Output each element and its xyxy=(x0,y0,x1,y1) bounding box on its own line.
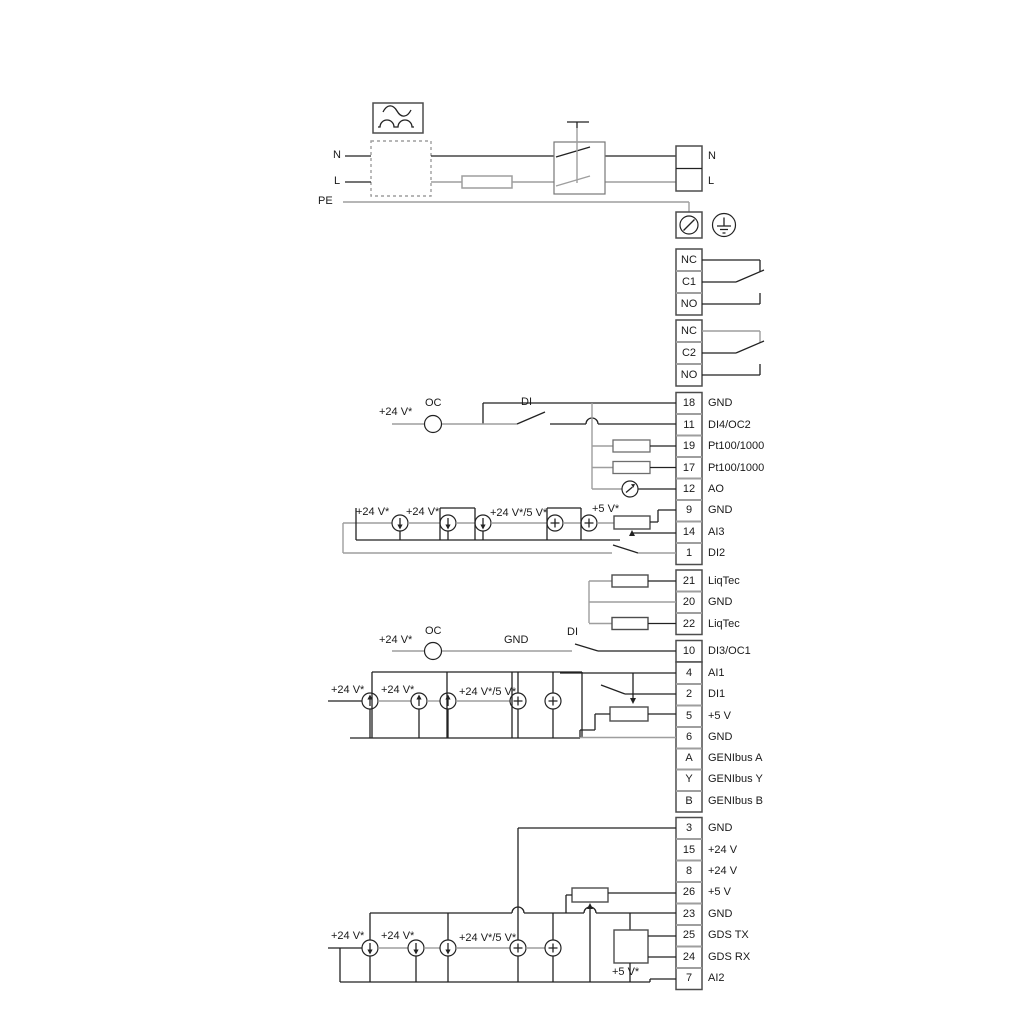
terminal-25-label: GDS TX xyxy=(708,929,749,942)
terminal-1-label: DI2 xyxy=(708,547,725,560)
terminal-12: 12 xyxy=(676,482,702,496)
terminal-14: 14 xyxy=(676,525,702,539)
terminal-25: 25 xyxy=(676,928,702,942)
relay1-no: NO xyxy=(676,297,702,311)
terminal-10: 10 xyxy=(676,644,702,658)
terminal-7-label: AI2 xyxy=(708,972,725,985)
terminal-17-label: Pt100/1000 xyxy=(708,462,764,475)
terminal-1: 1 xyxy=(676,546,702,560)
terminal-b: B xyxy=(676,794,702,808)
terminal-y: Y xyxy=(676,772,702,786)
gds-v5: +5 V* xyxy=(612,966,639,979)
terminal-21-label: LiqTec xyxy=(708,575,740,588)
terminal-24-label: GDS RX xyxy=(708,951,750,964)
terminal-22: 22 xyxy=(676,617,702,631)
relay1-nc: NC xyxy=(676,253,702,267)
terminal-9: 9 xyxy=(676,503,702,517)
terminal-5: 5 xyxy=(676,709,702,723)
ai1-v24-a: +24 V* xyxy=(331,684,364,697)
terminal-21: 21 xyxy=(676,574,702,588)
ai2-v24-a: +24 V* xyxy=(331,930,364,943)
mains-terminal-block xyxy=(676,146,702,191)
ai2-input-circuit xyxy=(328,828,676,982)
terminal-3-label: GND xyxy=(708,822,732,835)
di-annotation-top: DI xyxy=(521,396,532,409)
di3-oc1-circuit xyxy=(392,643,676,660)
relay1-contact-wiring xyxy=(702,260,764,304)
terminal-18: 18 xyxy=(676,396,702,410)
terminal-18-label: GND xyxy=(708,397,732,410)
terminal-l-label: L xyxy=(708,175,714,188)
oc-annotation-top: OC xyxy=(425,397,442,410)
terminal-19-label: Pt100/1000 xyxy=(708,440,764,453)
ai3-v24-5: +24 V*/5 V* xyxy=(490,507,547,520)
terminal-y-label: GENIbus Y xyxy=(708,773,763,786)
terminal-15-label: +24 V xyxy=(708,844,737,857)
ai3-v5: +5 V* xyxy=(592,503,619,516)
relay2-contact-wiring xyxy=(702,331,764,375)
terminal-12-label: AO xyxy=(708,483,724,496)
mains-wires xyxy=(343,156,689,212)
terminal-15: 15 xyxy=(676,843,702,857)
terminal-2-label: DI1 xyxy=(708,688,725,701)
terminal-14-label: AI3 xyxy=(708,526,725,539)
ai2-v24-5: +24 V*/5 V* xyxy=(459,932,516,945)
terminal-23-label: GND xyxy=(708,908,732,921)
relay2-no: NO xyxy=(676,368,702,382)
terminal-6: 6 xyxy=(676,730,702,744)
v24-annotation-top: +24 V* xyxy=(379,406,412,419)
liqtec-sensor-circuit xyxy=(589,575,676,630)
relay2-nc: NC xyxy=(676,324,702,338)
terminal-2: 2 xyxy=(676,687,702,701)
terminal-a-label: GENIbus A xyxy=(708,752,762,765)
terminal-b-label: GENIbus B xyxy=(708,795,763,808)
main-switch-symbol xyxy=(554,122,605,194)
terminal-19: 19 xyxy=(676,439,702,453)
terminal-4-label: AI1 xyxy=(708,667,725,680)
row10-gnd: GND xyxy=(504,634,528,647)
terminal-22-label: LiqTec xyxy=(708,618,740,631)
wiring-diagram: N L PE N L NC C1 NO NC C2 NO OC DI +24 V… xyxy=(0,0,1024,1024)
terminal-3: 3 xyxy=(676,821,702,835)
mains-pe-label: PE xyxy=(318,195,333,208)
ai1-input-circuit xyxy=(328,672,676,738)
ai1-v24-b: +24 V* xyxy=(381,684,414,697)
pe-terminal xyxy=(676,212,702,238)
relay2-c2: C2 xyxy=(676,346,702,360)
terminal-8-label: +24 V xyxy=(708,865,737,878)
terminal-4: 4 xyxy=(676,666,702,680)
terminal-n-label: N xyxy=(708,150,716,163)
terminal-23: 23 xyxy=(676,907,702,921)
mains-n-label: N xyxy=(333,149,341,162)
fuse-symbol xyxy=(462,176,512,188)
terminal-20: 20 xyxy=(676,595,702,609)
row10-v24: +24 V* xyxy=(379,634,412,647)
ai3-v24-a: +24 V* xyxy=(356,506,389,519)
terminal-17: 17 xyxy=(676,461,702,475)
terminal-10-label: DI3/OC1 xyxy=(708,645,751,658)
row10-oc: OC xyxy=(425,625,442,638)
terminal-11-label: DI4/OC2 xyxy=(708,419,751,432)
mains-filter-symbol xyxy=(373,103,423,133)
ai3-v24-b: +24 V* xyxy=(406,506,439,519)
relay1-c1: C1 xyxy=(676,275,702,289)
row10-di: DI xyxy=(567,626,578,639)
ai2-v24-b: +24 V* xyxy=(381,930,414,943)
ai1-v24-5: +24 V*/5 V* xyxy=(459,686,516,699)
terminal-9-label: GND xyxy=(708,504,732,517)
earth-ground-symbol xyxy=(713,214,736,237)
terminal-7: 7 xyxy=(676,971,702,985)
terminal-24: 24 xyxy=(676,950,702,964)
terminal-6-label: GND xyxy=(708,731,732,744)
terminal-8: 8 xyxy=(676,864,702,878)
rcd-dashed-box xyxy=(371,141,431,196)
terminal-26: 26 xyxy=(676,885,702,899)
terminal-5-label: +5 V xyxy=(708,710,731,723)
terminal-26-label: +5 V xyxy=(708,886,731,899)
terminal-20-label: GND xyxy=(708,596,732,609)
mains-l-label: L xyxy=(334,175,340,188)
terminal-a: A xyxy=(676,751,702,765)
terminal-11: 11 xyxy=(676,418,702,432)
pt-sensor-and-ao-circuit xyxy=(592,403,676,497)
